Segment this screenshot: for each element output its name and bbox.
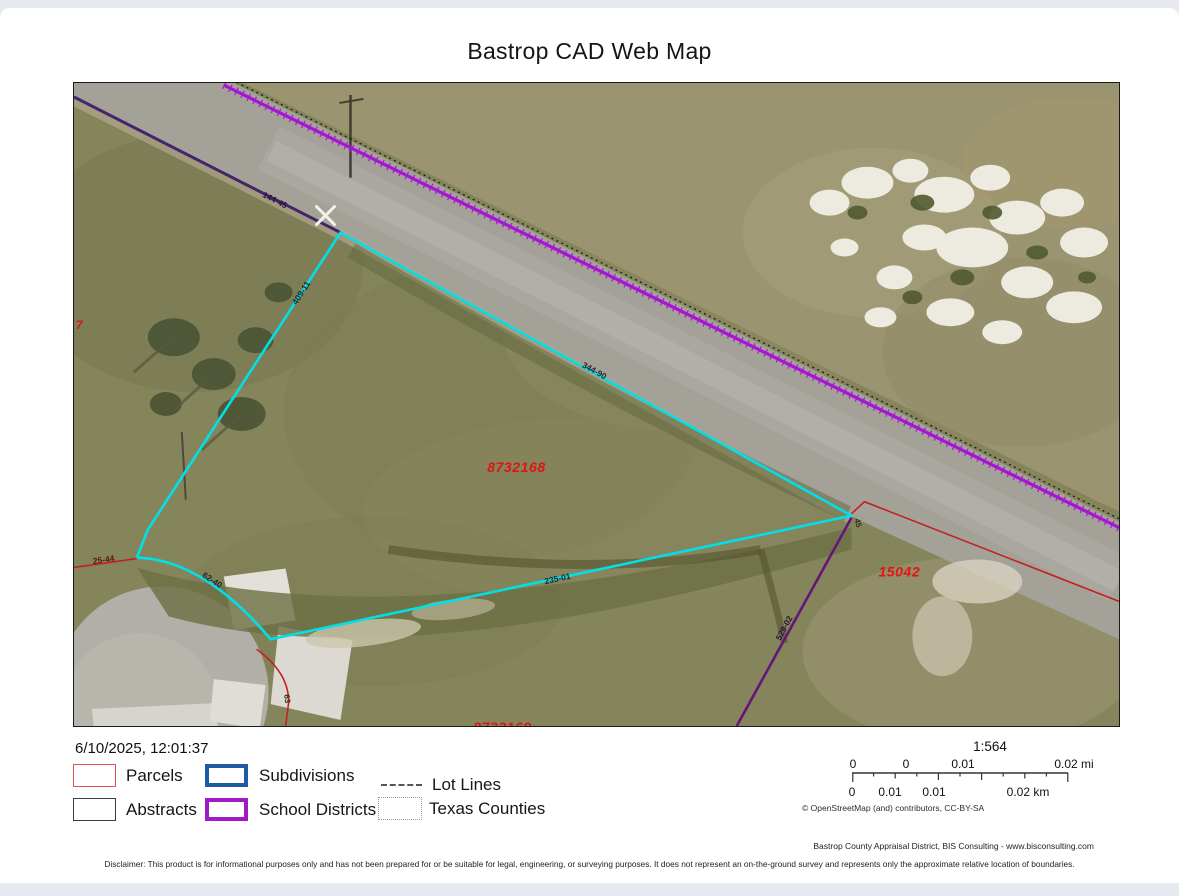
scale-km-tick: 0 <box>849 785 856 799</box>
page-title: Bastrop CAD Web Map <box>0 38 1179 65</box>
scale-mi-tick: 0.01 <box>951 757 974 771</box>
export-timestamp: 6/10/2025, 12:01:37 <box>75 740 208 757</box>
scale-km-tick: 0.01 <box>922 785 945 799</box>
legend-item-abstracts: Abstracts <box>73 798 197 821</box>
legend-item-school-districts: School Districts <box>205 798 376 821</box>
legend-item-lot-lines: Lot Lines <box>381 775 501 795</box>
legend-swatch-subdivisions <box>205 764 248 787</box>
parcel-id-east: 15042 <box>878 563 920 579</box>
disclaimer-text: Disclaimer: This product is for informat… <box>0 859 1179 869</box>
legend-swatch-lot-lines <box>381 784 422 786</box>
legend-label: Abstracts <box>126 800 197 820</box>
legend-label: School Districts <box>259 800 376 820</box>
legend-item-subdivisions: Subdivisions <box>205 764 354 787</box>
legend-swatch-school-districts <box>205 798 248 821</box>
legend-item-texas-counties: Texas Counties <box>378 797 545 820</box>
legend-label: Subdivisions <box>259 766 354 786</box>
legend-label: Parcels <box>126 766 183 786</box>
legend-swatch-texas-counties <box>378 797 422 820</box>
parcel-id-main: 8732168 <box>487 459 546 475</box>
district-credit: Bastrop County Appraisal District, BIS C… <box>813 841 1094 851</box>
legend-swatch-abstracts <box>73 798 116 821</box>
osm-attribution: © OpenStreetMap (and) contributors, CC-B… <box>802 803 984 813</box>
map-canvas: 8732168 15042 8732169 7 144-45 409-11 34… <box>74 83 1119 726</box>
scale-mi-tick: 0 <box>850 757 857 771</box>
legend-swatch-parcels <box>73 764 116 787</box>
legend-label: Lot Lines <box>432 775 501 795</box>
legend-label: Texas Counties <box>429 799 545 819</box>
scale-mi-tick: 0 <box>903 757 910 771</box>
map-viewport: 8732168 15042 8732169 7 144-45 409-11 34… <box>73 82 1120 727</box>
scale-km-tick: 0.01 <box>878 785 901 799</box>
scale-mi-tick: 0.02 mi <box>1054 757 1093 771</box>
aerial-imagery <box>74 83 1119 726</box>
scale-km-tick: 0.02 km <box>1007 785 1050 799</box>
map-export-page: { "page": { "title": "Bastrop CAD Web Ma… <box>0 0 1179 896</box>
scale-ratio: 1:564 <box>930 739 1050 754</box>
parcel-id-south-clipped: 8732169 <box>473 719 532 726</box>
legend-item-parcels: Parcels <box>73 764 183 787</box>
scale-bar <box>852 772 1069 785</box>
